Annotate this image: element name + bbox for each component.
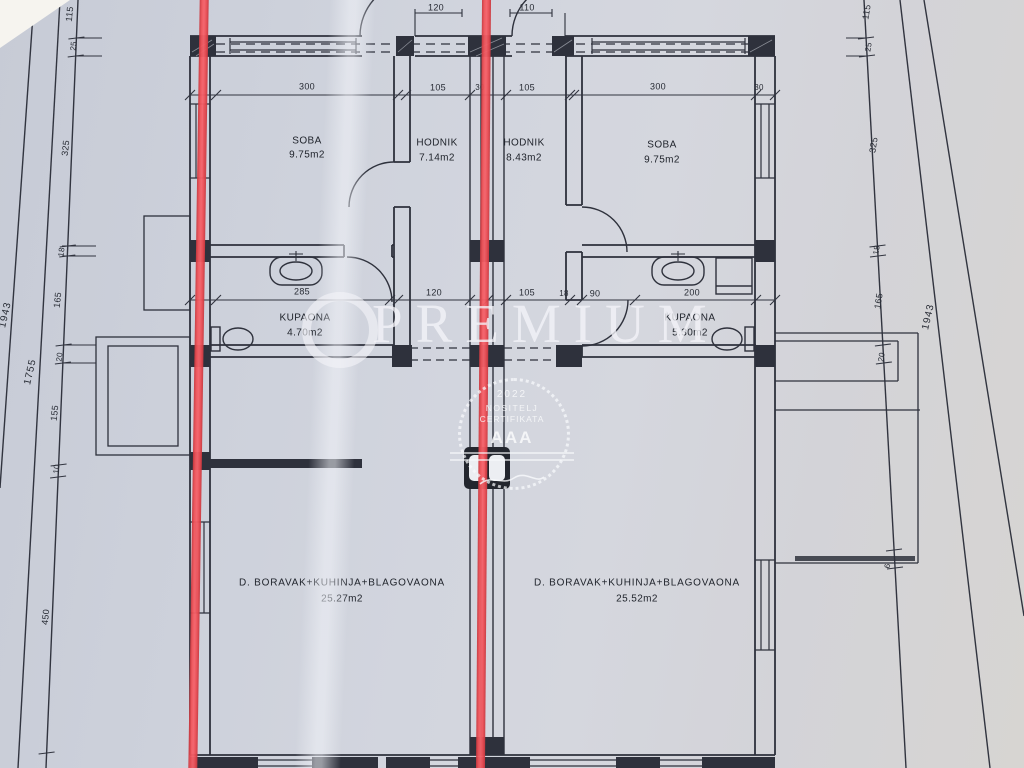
- dim-left-165: 165: [53, 292, 64, 309]
- certificate-stamp-watermark: 2022 NOSITELJ CERTIFIKATA AAA: [450, 372, 574, 496]
- dim-right-6: 6: [884, 563, 893, 569]
- room-label-living-right-name: D. BORAVAK+KUHINJA+BLAGOVAONA: [534, 578, 740, 589]
- dim-door-left-120: 120: [428, 4, 444, 13]
- stamp-logo: AAA: [450, 428, 574, 448]
- room-label-hodnik-right-name: HODNIK: [503, 138, 544, 149]
- stamp-line2: CERTIFIKATA: [450, 414, 574, 424]
- dim-left-10: 10: [53, 464, 62, 474]
- dim-left-25: 25: [70, 41, 79, 51]
- dim-left-20: 20: [56, 352, 65, 362]
- shower-right-icon: [716, 258, 752, 294]
- room-label-soba-right-name: SOBA: [647, 140, 676, 151]
- stamp-year: 2022: [450, 389, 574, 400]
- dim-wall-30: 30: [754, 84, 764, 92]
- left-annex: [96, 216, 190, 455]
- dim-soba-right-300: 300: [650, 83, 666, 92]
- floor-plan-scan: 115 25 325 18 165 20 155 10 450 1943 175…: [0, 0, 1024, 768]
- room-label-soba-left-area: 9.75m2: [289, 150, 325, 161]
- dim-left-325: 325: [61, 140, 72, 157]
- stamp-rule-1: [450, 452, 574, 454]
- stamp-line1: NOSITELJ: [450, 403, 574, 413]
- stamp-signature-icon: [478, 472, 548, 488]
- dim-left-115: 115: [65, 6, 76, 22]
- watermark-brand: PREMIUM: [372, 292, 720, 355]
- right-terrace: [775, 333, 920, 563]
- dim-left-155: 155: [50, 405, 61, 422]
- dim-bath-left-285: 285: [294, 288, 310, 297]
- toilet-left-icon: [211, 327, 253, 351]
- dim-right-25: 25: [864, 42, 873, 53]
- room-label-soba-left-name: SOBA: [292, 136, 321, 147]
- room-label-hodnik-right-area: 8.43m2: [506, 153, 542, 164]
- room-label-soba-right-area: 9.75m2: [644, 155, 680, 166]
- dim-door-right-110: 110: [519, 4, 534, 13]
- dim-hodnik-left-105: 105: [430, 84, 446, 93]
- dim-left-450: 450: [41, 609, 52, 626]
- room-label-hodnik-left-area: 7.14m2: [419, 153, 455, 164]
- dim-left-18: 18: [58, 247, 67, 257]
- premium-logo-ring-icon: [302, 292, 378, 368]
- dim-right-18: 18: [872, 245, 881, 256]
- room-label-hodnik-left-name: HODNIK: [416, 138, 457, 149]
- dim-hodnik-right-105: 105: [519, 84, 535, 93]
- room-label-living-right-area: 25.52m2: [616, 594, 658, 605]
- dim-soba-left-300: 300: [299, 83, 315, 92]
- stamp-rule-2: [450, 459, 574, 461]
- dim-right-20: 20: [877, 352, 886, 363]
